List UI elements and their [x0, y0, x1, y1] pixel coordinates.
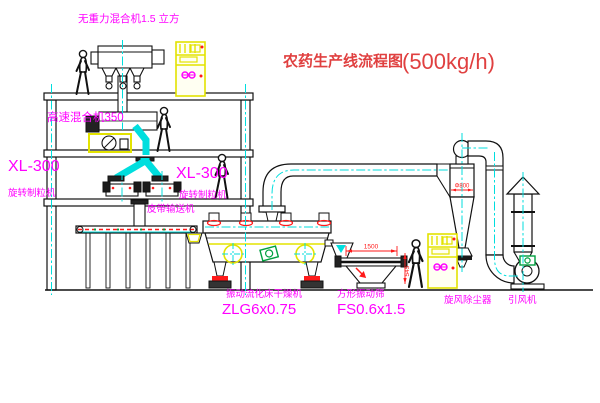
granulator-discharge-pipe [131, 200, 148, 227]
exhaust-duct-to-cyclone [263, 164, 437, 212]
pesticide-production-line-diagram: 农药生产线流程图 (500kg/h) 无重力混合机1.5 立方 高速混合机350… [0, 0, 600, 403]
diagram-title: 农药生产线流程图 [282, 52, 403, 70]
gravity-free-mixer [91, 46, 164, 112]
vibrating-sieve [335, 246, 407, 288]
control-cabinet-ground [428, 234, 457, 288]
label-dryer-model: ZLG6x0.75 [222, 301, 296, 318]
label-granulator-model-left: XL-300 [8, 158, 60, 175]
induced-draft-fan [511, 256, 544, 289]
label-sieve-name: 方形振动筛 [337, 288, 385, 300]
worker-figure-icon [158, 107, 171, 151]
label-belt-conveyor: 皮带输送机 [147, 203, 195, 215]
label-granulator-name-right: 旋转制粒机 [179, 189, 227, 201]
label-granulator-model-right: XL-300 [176, 165, 228, 182]
cyclone-to-fan-duct [468, 141, 514, 283]
fluid-bed-dryer [203, 164, 437, 288]
dim-sieve-height: 545 [404, 265, 411, 276]
sieve-feed-hopper [325, 240, 353, 258]
control-cabinet-upper [176, 42, 205, 96]
label-gravity-mixer: 无重力混合机1.5 立方 [78, 12, 180, 25]
cad-drawing: 农药生产线流程图 (500kg/h) 无重力混合机1.5 立方 高速混合机350… [0, 0, 600, 403]
label-fan: 引风机 [508, 294, 537, 306]
dim-cyclone-diameter: Φ800 [455, 184, 470, 190]
label-high-speed-mixer: 高速混合机350 [47, 110, 124, 124]
belt-conveyor [76, 226, 202, 288]
diagram-title-capacity: (500kg/h) [402, 49, 495, 74]
cyclone-inlet [437, 164, 450, 197]
label-sieve-model: FS0.6x1.5 [337, 301, 405, 318]
floor-slab-top [44, 93, 253, 100]
worker-figure-icon [409, 240, 423, 287]
worker-figure-icon [77, 50, 90, 94]
fan-motor-icon [520, 256, 535, 265]
y-distribution-pipe [108, 157, 168, 181]
label-granulator-name-left: 旋转制粒机 [8, 187, 56, 199]
label-dryer-name: 振动流化床干燥机 [226, 288, 303, 300]
dim-sieve-length: 1500 [364, 244, 379, 251]
label-cyclone: 旋风除尘器 [444, 294, 492, 306]
